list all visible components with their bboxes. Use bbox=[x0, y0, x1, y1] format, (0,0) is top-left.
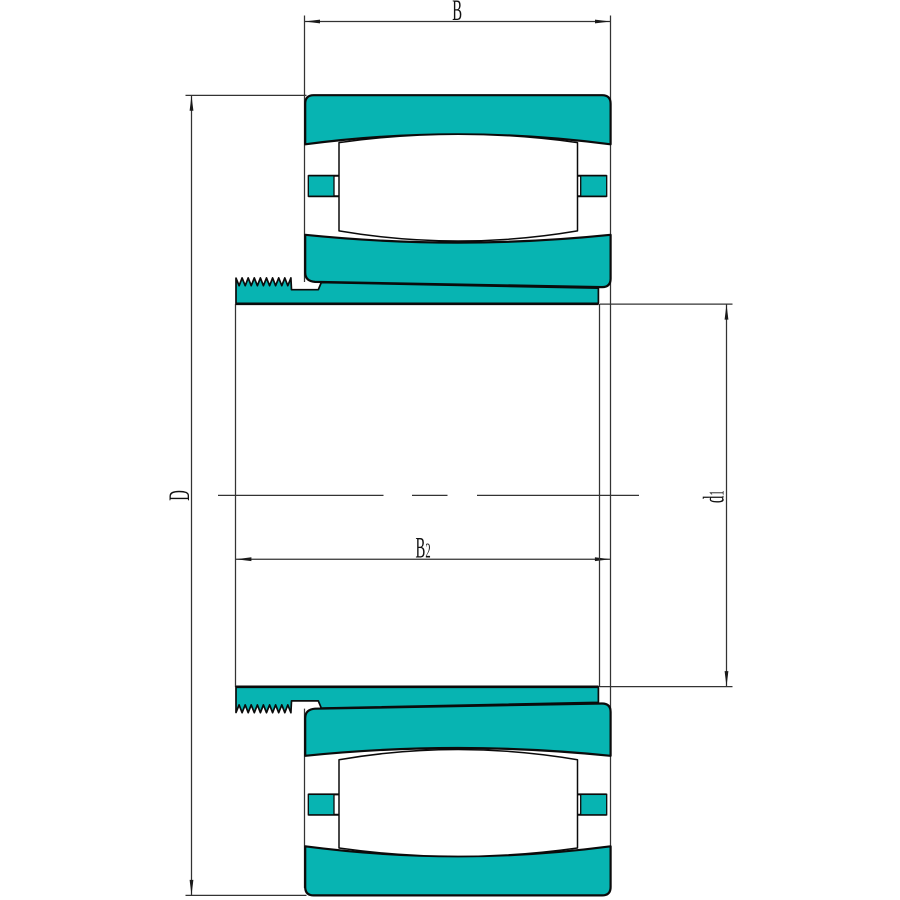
svg-text:B: B bbox=[452, 0, 462, 28]
svg-text:D: D bbox=[164, 490, 197, 501]
